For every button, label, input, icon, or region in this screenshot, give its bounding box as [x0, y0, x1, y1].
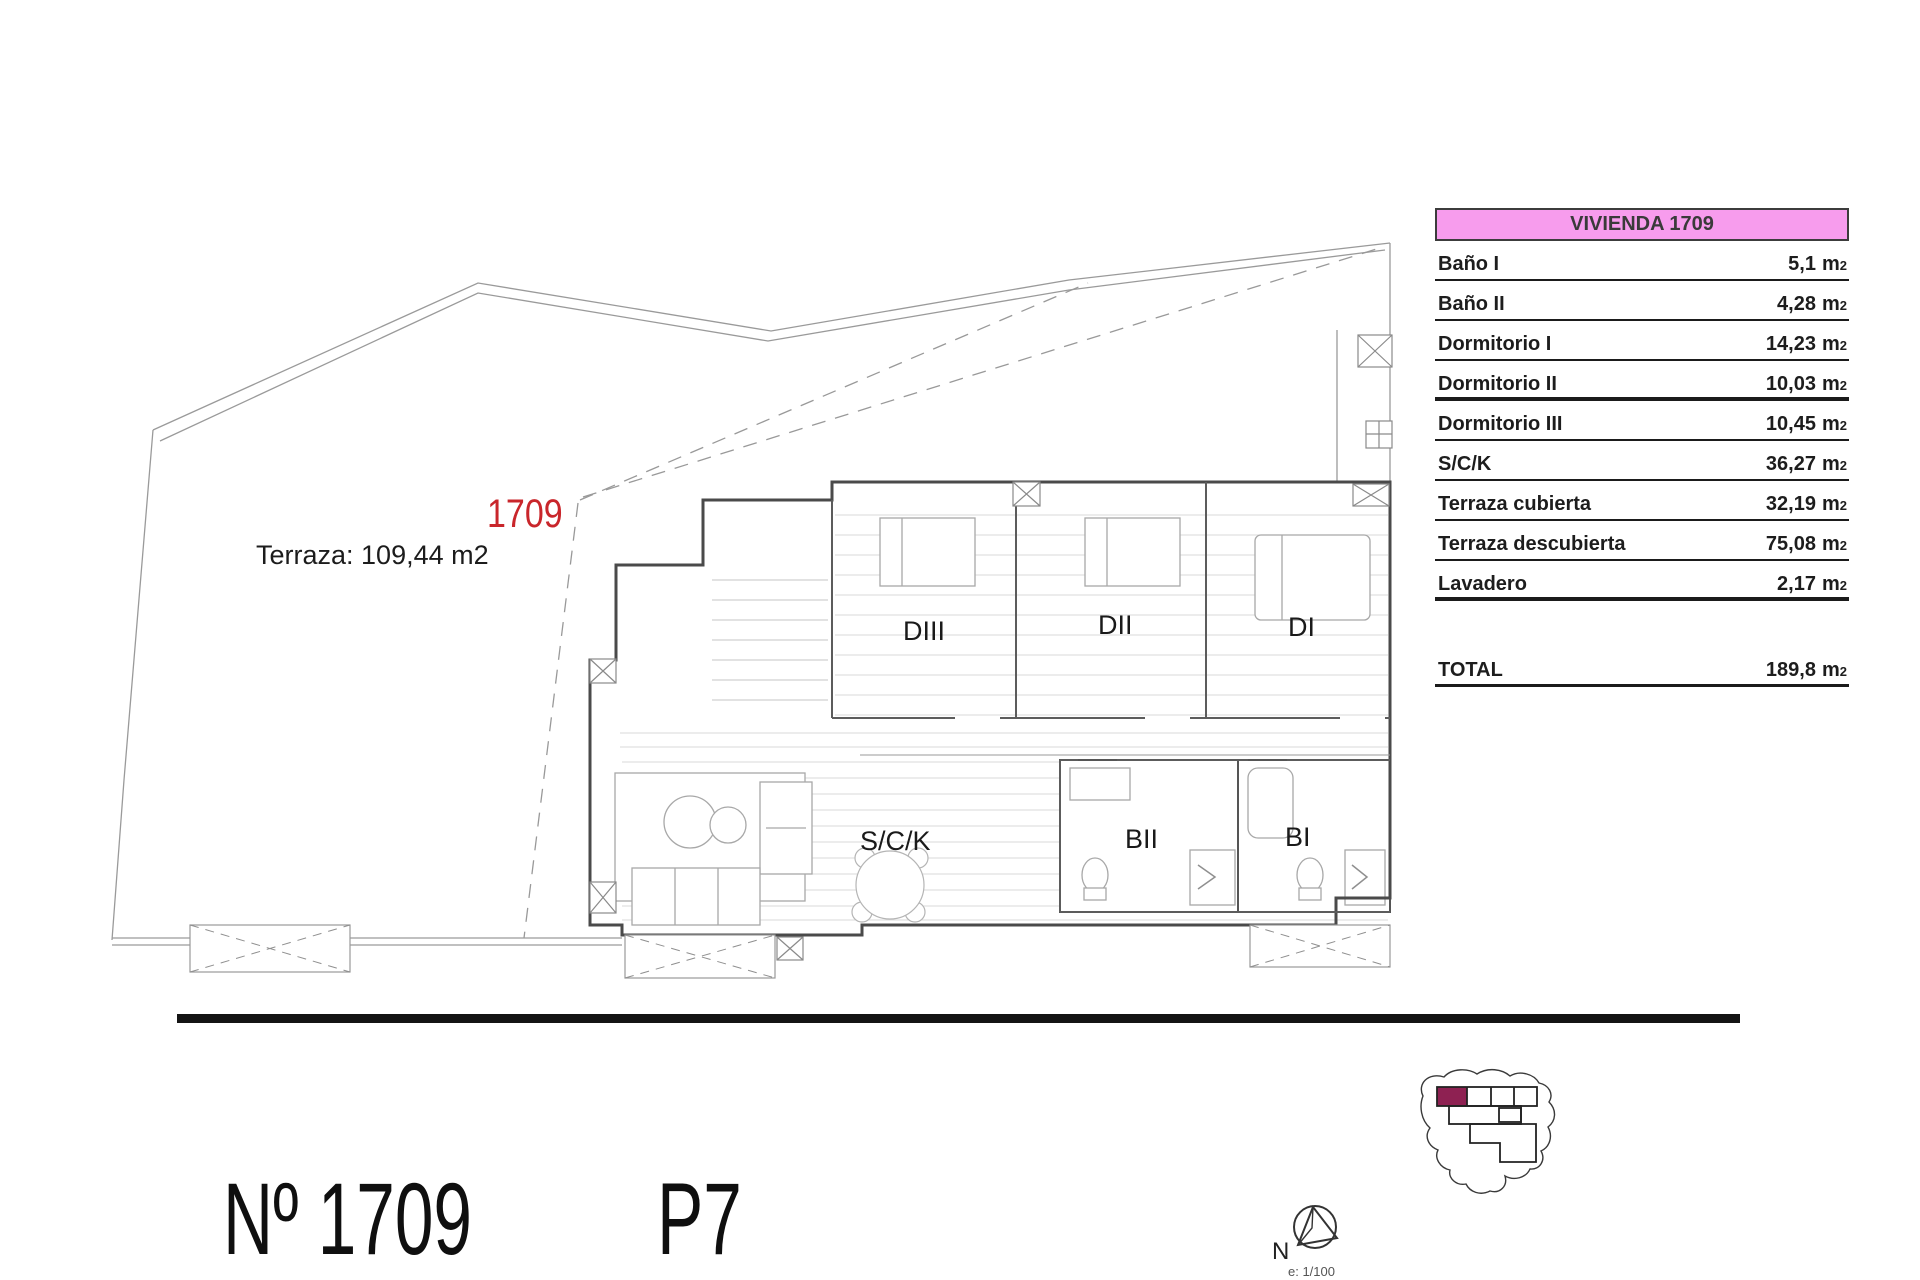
row-value: 14,23	[1766, 331, 1816, 357]
room-label-salon-cocina: S/C/K	[860, 826, 931, 857]
footer-divider	[177, 1014, 1740, 1023]
dining-table	[852, 848, 928, 922]
row-value: 36,27	[1766, 451, 1816, 477]
total-value: 189,8	[1766, 657, 1816, 683]
floorplan-sheet: N e: 1/100 1709 Terraza: 109,44 m2 DIII …	[0, 0, 1920, 1280]
table-row: S/C/K 36,27m2	[1435, 441, 1849, 481]
row-label: Dormitorio II	[1438, 371, 1557, 397]
north-compass: N e: 1/100	[1272, 1206, 1337, 1279]
terrace-area-note: Terraza: 109,44 m2	[256, 540, 489, 571]
bathroom-fixtures	[1060, 760, 1390, 912]
total-label: TOTAL	[1438, 657, 1503, 683]
scale-label: e: 1/100	[1288, 1264, 1335, 1279]
row-value: 10,03	[1766, 371, 1816, 397]
area-table-title: VIVIENDA 1709	[1435, 208, 1849, 241]
table-row: Lavadero 2,17m2	[1435, 561, 1849, 601]
north-label: N	[1272, 1238, 1289, 1265]
room-label-bano-2: BII	[1125, 824, 1158, 855]
row-label: Baño II	[1438, 291, 1505, 317]
row-value: 5,1	[1788, 251, 1816, 277]
table-total-row: TOTAL 189,8m2	[1435, 647, 1849, 687]
row-label: Baño I	[1438, 251, 1499, 277]
row-label: Dormitorio III	[1438, 411, 1562, 437]
room-label-dormitorio-1: DI	[1288, 612, 1315, 643]
area-table: VIVIENDA 1709 Baño I 5,1m2 Baño II 4,28m…	[1435, 208, 1849, 687]
room-label-dormitorio-2: DII	[1098, 610, 1133, 641]
row-label: Dormitorio I	[1438, 331, 1551, 357]
entry-steps	[705, 565, 830, 715]
table-row: Terraza descubierta 75,08m2	[1435, 521, 1849, 561]
footer-floor-label: P7	[657, 1168, 742, 1270]
row-label: Lavadero	[1438, 571, 1527, 597]
room-label-bano-1: BI	[1285, 822, 1311, 853]
room-label-dormitorio-3: DIII	[903, 616, 945, 647]
key-plan	[1421, 1070, 1554, 1194]
row-value: 32,19	[1766, 491, 1816, 517]
row-value: 2,17	[1777, 571, 1816, 597]
unit-number-annotation: 1709	[487, 492, 563, 537]
table-row: Dormitorio I 14,23m2	[1435, 321, 1849, 361]
footer-unit-title: Nº 1709	[223, 1168, 472, 1270]
row-value: 4,28	[1777, 291, 1816, 317]
key-plan-highlighted-unit	[1437, 1087, 1467, 1106]
row-value: 10,45	[1766, 411, 1816, 437]
table-row: Baño II 4,28m2	[1435, 281, 1849, 321]
row-label: Terraza cubierta	[1438, 491, 1591, 517]
table-row: Baño I 5,1m2	[1435, 241, 1849, 281]
row-label: S/C/K	[1438, 451, 1491, 477]
table-row: Dormitorio III 10,45m2	[1435, 401, 1849, 441]
row-value: 75,08	[1766, 531, 1816, 557]
table-row: Dormitorio II 10,03m2	[1435, 361, 1849, 401]
row-label: Terraza descubierta	[1438, 531, 1626, 557]
table-row: Terraza cubierta 32,19m2	[1435, 481, 1849, 521]
